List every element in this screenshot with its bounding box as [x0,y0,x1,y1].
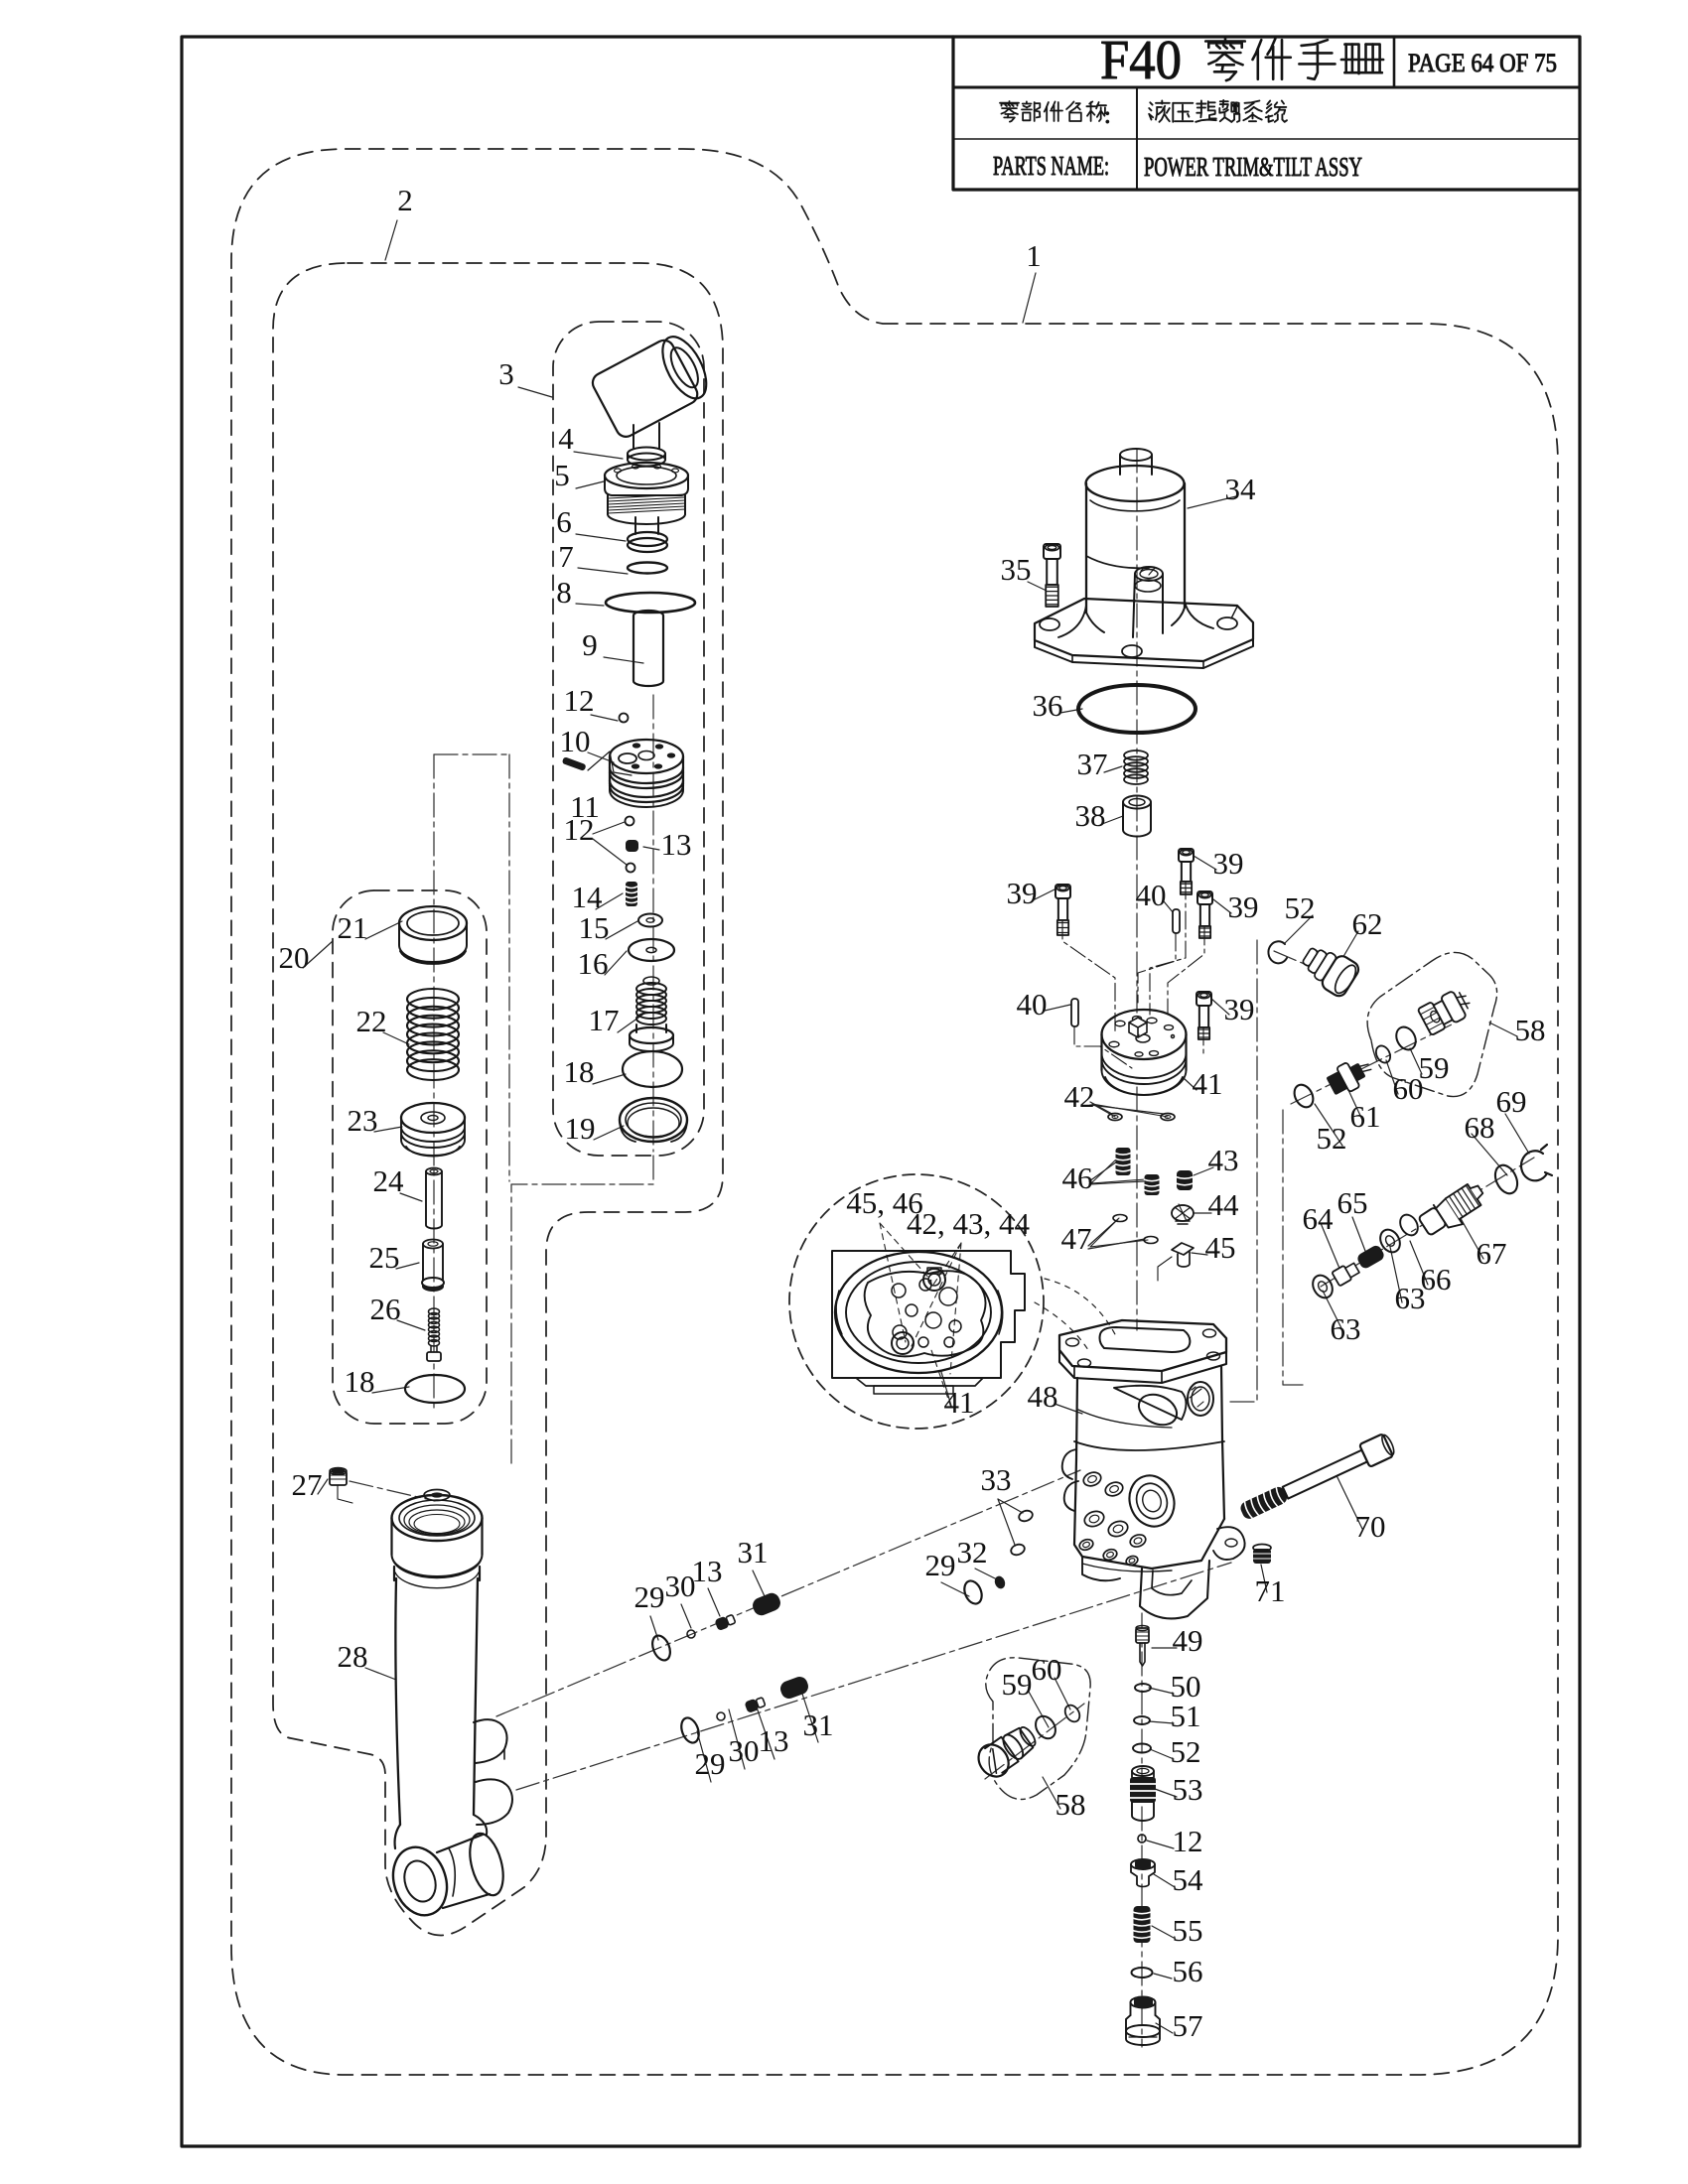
svg-text:20: 20 [279,940,310,975]
svg-text:41: 41 [1193,1066,1223,1101]
svg-text:13: 13 [692,1554,723,1588]
svg-text:52: 52 [1285,890,1316,925]
svg-text:55: 55 [1173,1913,1203,1948]
svg-text:29: 29 [695,1746,726,1781]
svg-text:53: 53 [1173,1772,1203,1807]
svg-text:52: 52 [1171,1734,1201,1769]
svg-text:41: 41 [944,1385,975,1420]
svg-text:POWER TRIM&TILT ASSY: POWER TRIM&TILT ASSY [1144,152,1362,182]
svg-text:5: 5 [554,458,570,492]
svg-text:59: 59 [1002,1667,1033,1702]
svg-text:62: 62 [1352,906,1383,941]
svg-text:61: 61 [1350,1099,1381,1134]
svg-text:46: 46 [1062,1160,1093,1195]
svg-text:15: 15 [579,910,610,945]
svg-text:9: 9 [582,627,598,662]
svg-text:PAGE 64 OF 75: PAGE 64 OF 75 [1408,49,1557,77]
svg-text:23: 23 [348,1103,378,1138]
svg-text:65: 65 [1337,1185,1368,1220]
svg-text:28: 28 [338,1639,368,1674]
svg-text:40: 40 [1017,987,1048,1022]
svg-text:16: 16 [578,946,609,981]
svg-text:70: 70 [1355,1509,1386,1544]
svg-text:PARTS NAME:: PARTS NAME: [993,151,1109,181]
svg-text:67: 67 [1477,1236,1507,1271]
svg-text:64: 64 [1303,1201,1335,1236]
svg-text:7: 7 [558,539,574,574]
svg-text:71: 71 [1255,1573,1286,1608]
svg-text:4: 4 [558,421,574,456]
svg-text:39: 39 [1213,846,1244,881]
svg-text:19: 19 [565,1111,596,1146]
svg-text:32: 32 [957,1535,988,1570]
svg-text:43: 43 [1208,1143,1239,1177]
svg-text:26: 26 [370,1292,401,1326]
svg-text:18: 18 [345,1364,375,1399]
svg-text:34: 34 [1225,472,1257,506]
svg-text:12: 12 [1173,1824,1203,1858]
svg-text:42, 43, 44: 42, 43, 44 [907,1206,1031,1241]
svg-text:58: 58 [1515,1013,1546,1047]
svg-text:39: 39 [1228,889,1259,924]
svg-text:2: 2 [397,183,413,217]
svg-text:60: 60 [1393,1071,1424,1106]
svg-text:39: 39 [1007,876,1038,910]
svg-text:F40: F40 [1100,30,1182,91]
svg-text:18: 18 [564,1054,595,1089]
svg-text:3: 3 [498,356,514,391]
svg-text:37: 37 [1077,747,1108,781]
svg-text:47: 47 [1061,1221,1092,1256]
svg-text:49: 49 [1173,1623,1203,1658]
svg-text:8: 8 [556,575,572,610]
svg-text:56: 56 [1173,1954,1203,1988]
svg-text:51: 51 [1171,1699,1201,1733]
svg-text:39: 39 [1224,992,1255,1026]
svg-text:33: 33 [981,1462,1012,1497]
svg-text:21: 21 [338,910,368,945]
svg-text:69: 69 [1496,1084,1527,1119]
svg-text:1: 1 [1026,238,1042,273]
svg-text:24: 24 [373,1163,405,1198]
svg-text:27: 27 [292,1467,323,1502]
svg-text:45: 45 [1205,1230,1236,1265]
svg-text:12: 12 [564,812,595,847]
svg-text:35: 35 [1001,552,1032,587]
svg-text:17: 17 [589,1003,620,1037]
svg-text:29: 29 [634,1579,665,1614]
svg-text::: : [1104,103,1111,129]
svg-text:58: 58 [1055,1787,1086,1822]
svg-text:30: 30 [729,1733,760,1768]
svg-text:14: 14 [572,880,604,914]
svg-text:13: 13 [759,1723,789,1758]
svg-text:57: 57 [1173,2008,1203,2043]
svg-text:40: 40 [1136,878,1167,912]
svg-text:38: 38 [1075,798,1106,833]
svg-text:13: 13 [661,827,692,862]
svg-text:52: 52 [1317,1121,1347,1156]
svg-text:22: 22 [356,1004,387,1038]
svg-text:68: 68 [1465,1110,1495,1145]
svg-text:31: 31 [738,1535,769,1570]
svg-text:29: 29 [925,1548,956,1582]
svg-text:25: 25 [369,1240,400,1275]
svg-text:12: 12 [564,683,595,718]
svg-text:63: 63 [1331,1311,1361,1346]
svg-text:44: 44 [1208,1187,1240,1222]
svg-text:10: 10 [560,724,591,758]
svg-text:48: 48 [1028,1379,1058,1414]
svg-text:6: 6 [556,504,572,539]
svg-text:42: 42 [1064,1079,1095,1114]
svg-text:60: 60 [1032,1652,1062,1687]
svg-text:54: 54 [1173,1862,1204,1897]
svg-text:31: 31 [803,1707,834,1742]
svg-text:36: 36 [1033,688,1063,723]
svg-text:66: 66 [1421,1262,1452,1297]
